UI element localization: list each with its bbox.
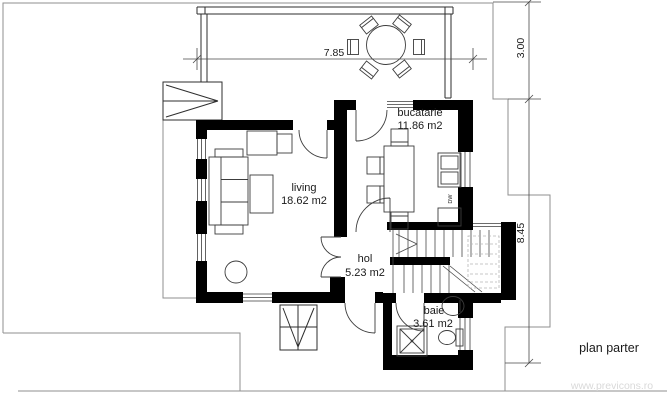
floor-plan-page: DW 7.85 3.00 8.45 living 18.62 m2 bucata… (0, 0, 668, 400)
window-stair-landing (473, 224, 501, 227)
window-living-3 (198, 234, 206, 261)
terrace-railing-left (201, 14, 207, 82)
room-area-hall: 5.23 m2 (345, 267, 385, 279)
room-area-living: 18.62 m2 (281, 195, 327, 207)
dimension-terrace-width: 7.85 (183, 47, 487, 70)
door-entry (345, 303, 375, 333)
door-kitchen-terrace (356, 110, 387, 141)
kitchen-chair (367, 157, 384, 174)
coffee-table (250, 175, 273, 213)
door-double-living-hall (321, 237, 341, 277)
window-kitchen-east (460, 152, 470, 187)
stair-treads-lower (404, 265, 449, 293)
terrace-chair (393, 60, 412, 78)
room-label-kitchen: bucatarie (397, 107, 442, 119)
exterior-steps-north (163, 82, 222, 120)
stair-treads-upper (399, 230, 489, 257)
door-living-terrace (299, 130, 327, 158)
toilet (439, 329, 464, 346)
armchair (247, 131, 292, 155)
sofa (209, 149, 248, 234)
room-label-living: living (291, 182, 316, 194)
terrace-chair (393, 15, 412, 33)
watermark: www.previcons.ro (570, 380, 653, 392)
room-area-kitchen: 11.86 m2 (397, 120, 442, 132)
room-label-hall: hol (358, 253, 373, 265)
dimension-label-width: 7.85 (324, 47, 345, 59)
terrace-chair (360, 16, 379, 34)
terrace-railing-right (445, 14, 451, 98)
shower (397, 326, 427, 356)
living-furniture (209, 131, 292, 283)
window-bathroom-east (460, 318, 470, 350)
dimension-label-house-depth: 8.45 (515, 223, 527, 244)
side-table (225, 261, 247, 283)
exterior-steps-entry (280, 305, 317, 350)
floor-plan-canvas: DW 7.85 3.00 8.45 living 18.62 m2 bucata… (0, 0, 668, 400)
window-living-2 (198, 179, 206, 201)
kitchen-furniture: DW (367, 129, 461, 229)
kitchen-chair (367, 186, 384, 203)
terrace-railing-top (197, 7, 453, 14)
terrace-chair (348, 40, 359, 55)
kitchen-table (384, 146, 414, 212)
plan-title: plan parter (579, 341, 639, 355)
dimension-label-terrace-depth: 3.00 (515, 38, 527, 59)
dimension-right-side: 3.00 8.45 (493, 0, 541, 367)
room-label-bathroom: baie (424, 305, 445, 317)
terrace-chairs (348, 15, 425, 79)
room-area-bathroom: 3.61 m2 (413, 318, 453, 330)
window-living-1 (198, 139, 206, 159)
stair-landing-hatch (470, 244, 497, 282)
kitchen-sink-counter (438, 153, 461, 187)
dishwasher-label: DW (448, 194, 454, 204)
terrace-chair (414, 40, 425, 55)
window-living-south (243, 294, 272, 301)
terrace-chair (360, 61, 379, 79)
